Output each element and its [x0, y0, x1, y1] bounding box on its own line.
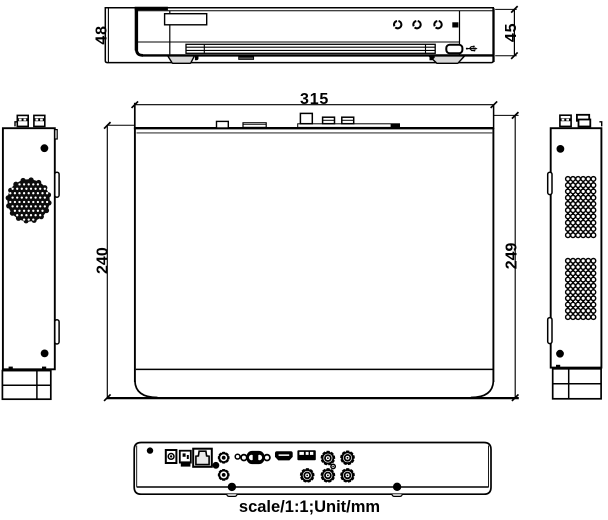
svg-text:45: 45 [503, 23, 520, 42]
svg-text:48: 48 [94, 25, 111, 44]
svg-text:scale/1:1;Unit/mm: scale/1:1;Unit/mm [239, 498, 380, 516]
svg-text:249: 249 [504, 242, 521, 269]
svg-text:240: 240 [95, 247, 112, 274]
svg-text:315: 315 [300, 91, 329, 108]
